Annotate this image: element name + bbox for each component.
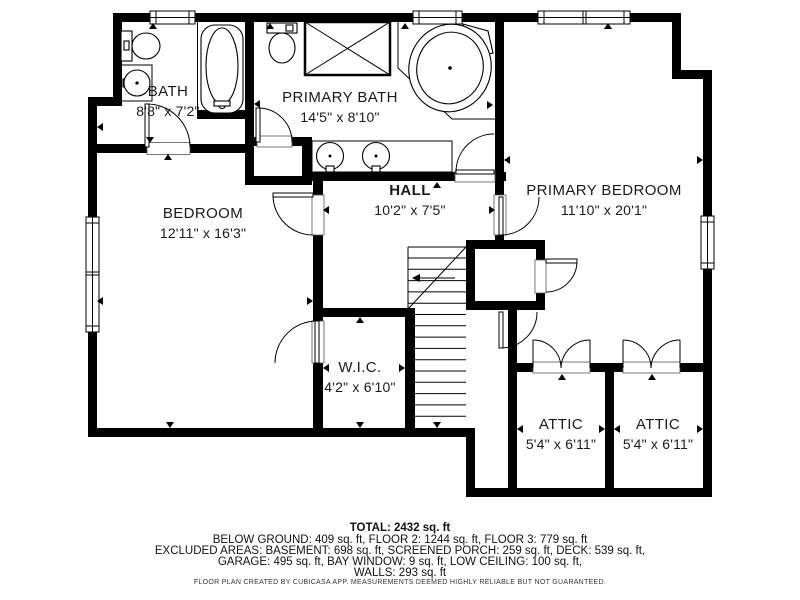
window-primary-bath-top (413, 11, 462, 24)
window-bedroom-left (86, 217, 99, 332)
room-name: HALL (310, 183, 510, 198)
room-dims: 14'5" x 8'10" (240, 110, 440, 124)
room-name: W.I.C. (280, 360, 440, 375)
floor-plan-page: BATH 8'8" x 7'2" PRIMARY BATH 14'5" x 8'… (0, 0, 800, 600)
footer-disclaimer: FLOOR PLAN CREATED BY CUBICASA APP. MEAS… (0, 579, 800, 586)
window-bath-top (150, 11, 195, 24)
room-label-hall: HALL 10'2" x 7'5" (310, 183, 510, 217)
room-label-bedroom: BEDROOM 12'11" x 16'3" (103, 206, 303, 240)
window-primary-bedroom-right (701, 216, 714, 269)
door-closet-primary-bedroom (546, 259, 577, 292)
room-name: ATTIC (578, 417, 738, 432)
shower (305, 22, 390, 75)
footer-walls-line: WALLS: 293 sq. ft (0, 567, 800, 579)
room-name: PRIMARY BEDROOM (504, 183, 704, 198)
door-primary-bath (456, 134, 494, 174)
room-dims: 11'10" x 20'1" (504, 203, 704, 217)
room-dims: 8'8" x 7'2" (98, 104, 238, 118)
room-dims: 5'4" x 6'11" (578, 437, 738, 451)
room-label-bath: BATH 8'8" x 7'2" (98, 84, 238, 118)
room-name: BEDROOM (103, 206, 303, 221)
window-primary-bedroom-top (538, 11, 630, 24)
room-label-primary-bath: PRIMARY BATH 14'5" x 8'10" (240, 90, 440, 124)
room-label-primary-bedroom: PRIMARY BEDROOM 11'10" x 20'1" (504, 183, 704, 217)
room-dims: 4'2" x 6'10" (280, 380, 440, 394)
room-dims: 10'2" x 7'5" (310, 203, 510, 217)
footer-total-area: TOTAL: 2432 sq. ft (0, 522, 800, 534)
room-label-wic: W.I.C. 4'2" x 6'10" (280, 360, 440, 394)
room-dims: 12'11" x 16'3" (103, 226, 303, 240)
toilet-bath (121, 31, 160, 61)
room-name: BATH (98, 84, 238, 99)
door-corridor (499, 312, 537, 348)
room-name: PRIMARY BATH (240, 90, 440, 105)
double-vanity (312, 141, 452, 172)
room-label-attic-right: ATTIC 5'4" x 6'11" (578, 417, 738, 451)
